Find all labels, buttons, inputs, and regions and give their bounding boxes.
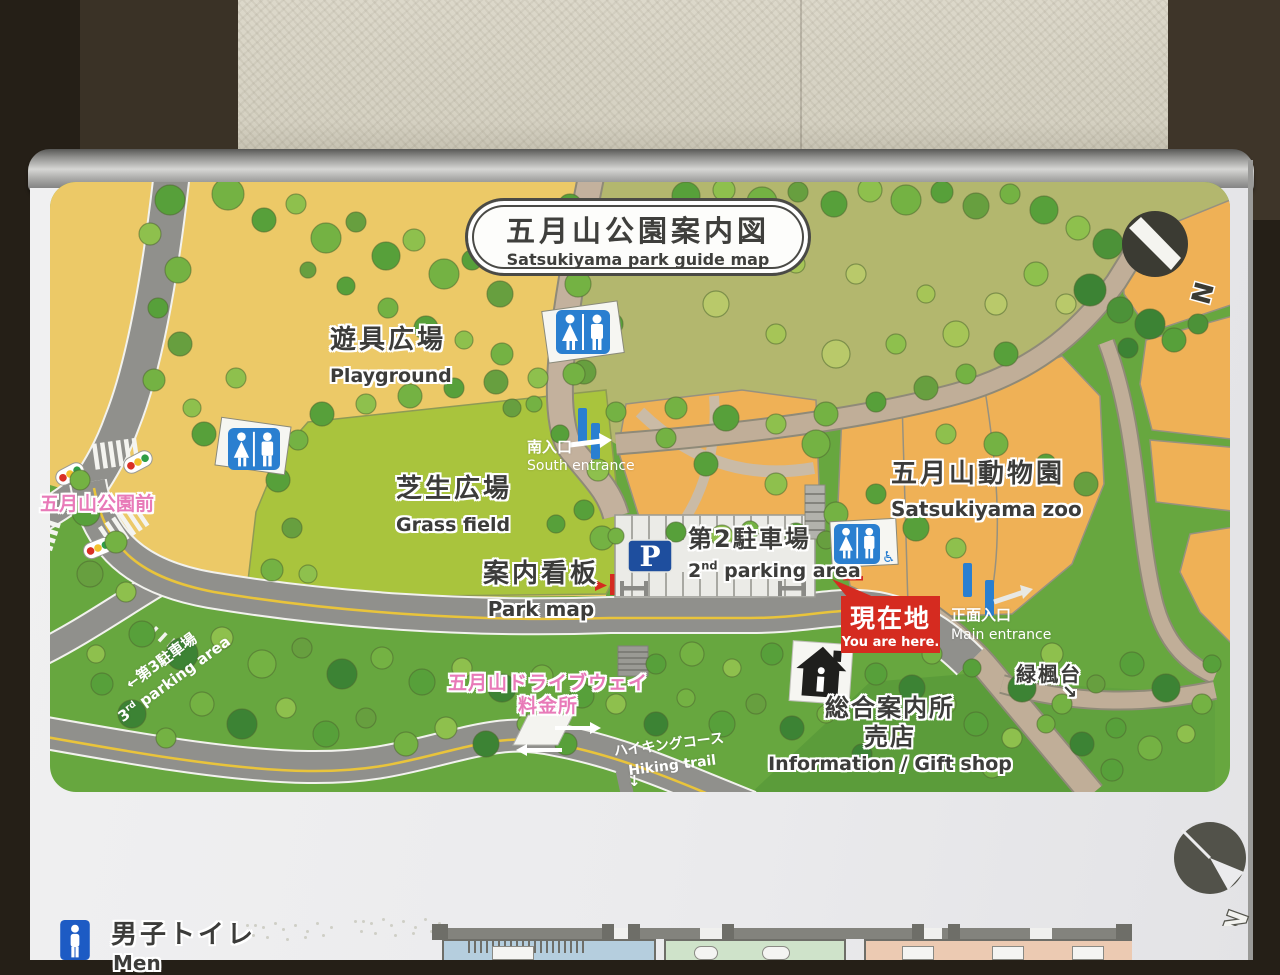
tree [129,621,155,647]
tree [116,582,136,602]
label-playground: 遊具広場 Playground [330,323,452,391]
tree [788,182,808,202]
tree [248,650,276,678]
tree [503,399,521,417]
tree [409,669,435,695]
tree [766,324,786,344]
tree [765,473,787,495]
label-zoo: 五月山動物園 Satsukiyama zoo [891,457,1082,525]
tree [802,430,830,458]
tree [766,414,786,434]
tree [680,642,704,666]
tree [1188,314,1208,334]
tree [963,193,989,219]
tree [276,698,296,718]
tree [821,191,847,217]
tree [917,285,935,303]
tree [192,422,216,446]
tree [484,370,508,394]
tree [1030,196,1058,224]
tree [1162,328,1186,352]
tree [346,212,366,232]
label-park-map-sign: 案内看板 Park map [478,557,604,625]
tree [526,396,542,412]
label-main-entrance: 正面入口 Main entrance [951,606,1051,645]
tree [713,405,739,431]
tree [156,728,176,748]
map-title-en: Satsukiyama park guide map [468,250,808,269]
tree [282,518,302,538]
tree [985,293,1007,315]
wall-seam [800,0,802,170]
tree [183,399,201,417]
label-bus-stop: 五月山公園前 [40,489,154,516]
tree [822,340,850,368]
tree [155,185,185,215]
svg-text:N: N [1216,906,1253,926]
toilet-south-icon [542,301,624,363]
map-title: 五月山公園案内図 Satsukiyama park guide map [465,198,811,276]
tree [139,223,161,245]
legend-mens-toilet-jp: 男子トイレ [111,914,256,951]
tree [403,229,425,251]
tree [703,291,729,317]
tree [70,470,90,490]
braille-dots [246,924,249,927]
parking-sign-icon: P [628,540,672,573]
tree [1070,732,1094,756]
toilet-floorplan [432,922,1132,960]
tree [148,298,168,318]
tree [356,708,376,728]
tree [666,522,686,542]
tree [77,561,103,587]
tree [165,257,191,283]
tree [665,397,687,419]
braille-dots [354,920,357,923]
tree [190,692,214,716]
tree [936,424,956,444]
ryokufudai-arrow-icon: ↘ [1062,682,1077,703]
tree [956,364,976,384]
tree [227,709,257,739]
tree [394,732,418,756]
tree [435,717,457,739]
tree [761,643,783,665]
tree [1093,229,1123,259]
tree [1192,694,1212,714]
tree [677,689,695,707]
tree [1106,718,1126,738]
label-south-entrance: 南入口 South entrance [527,438,635,475]
tree [694,452,718,476]
tree [528,368,548,388]
tree [547,515,565,533]
tree [429,259,459,289]
tree [1177,725,1195,743]
tree [866,484,886,504]
tree [646,654,666,674]
label-information: 総合案内所 売店 Information / Gift shop [738,694,1042,776]
label-parking2: 第2駐車場 2nd parking area [688,524,861,584]
tree [1152,674,1180,702]
tree [372,242,400,270]
tree [1120,652,1144,676]
tree [563,363,585,385]
tree [931,182,953,203]
tree [608,528,624,544]
tree [984,432,1008,456]
tree [656,428,676,448]
tree [606,402,626,422]
tree [105,531,127,553]
you-are-here-badge: 現在地 You are here. [841,596,940,653]
tree [946,538,966,558]
tree [1138,736,1162,760]
label-grass-field: 芝生広場 Grass field [396,472,512,540]
tree [886,334,906,354]
tree [310,402,334,426]
tree [252,208,276,232]
label-toll-gate: 五月山ドライブウェイ 料金所 [446,672,650,718]
tree [866,392,886,412]
tree [286,194,306,214]
mens-toilet-icon [58,920,92,960]
legend-mens-toilet-en: Men [113,951,161,975]
tree [356,394,376,414]
toilet-playground-icon [215,417,291,474]
tree [313,721,339,747]
tree [168,332,192,356]
tree [1074,274,1106,306]
photo-of-park-sign: { "sign": { "title": {"jp": "五月山公園案内図", … [0,0,1280,960]
tree [1000,184,1020,204]
tree [261,559,283,581]
tree [212,182,244,210]
tree [226,368,246,388]
tree [858,182,882,202]
tree [371,647,393,669]
tree [337,277,355,295]
tree [914,376,938,400]
tree [311,223,341,253]
tree [865,663,887,685]
tree [299,565,317,583]
tree [491,343,513,365]
tree [814,402,838,426]
tree [455,331,473,349]
tree [943,321,969,347]
tree [288,430,308,450]
tree [292,638,312,658]
tree [327,659,357,689]
tree [143,369,165,391]
tree [1203,655,1221,673]
compass-north-bottom-icon: N [1168,816,1268,926]
tree [963,659,981,677]
tree [1056,294,1076,314]
tree [891,185,921,215]
wheelchair-icon: ♿ [882,548,895,566]
tree [87,645,105,663]
tree [473,731,499,757]
tree [1087,675,1105,693]
svg-text:P: P [639,540,660,573]
map-title-jp: 五月山公園案内図 [468,208,808,250]
tree [846,264,866,284]
tree [994,342,1018,366]
tree [1101,759,1123,781]
tree [1024,262,1048,286]
tree [1107,297,1133,323]
tree [1066,216,1090,240]
tree [300,262,316,278]
tree [723,659,741,677]
tree [378,298,398,318]
tree [574,500,594,520]
tree [487,281,513,307]
hiking-trail-arrow-icon: ↓ [628,772,641,790]
tree [1135,309,1165,339]
tree [1118,338,1138,358]
